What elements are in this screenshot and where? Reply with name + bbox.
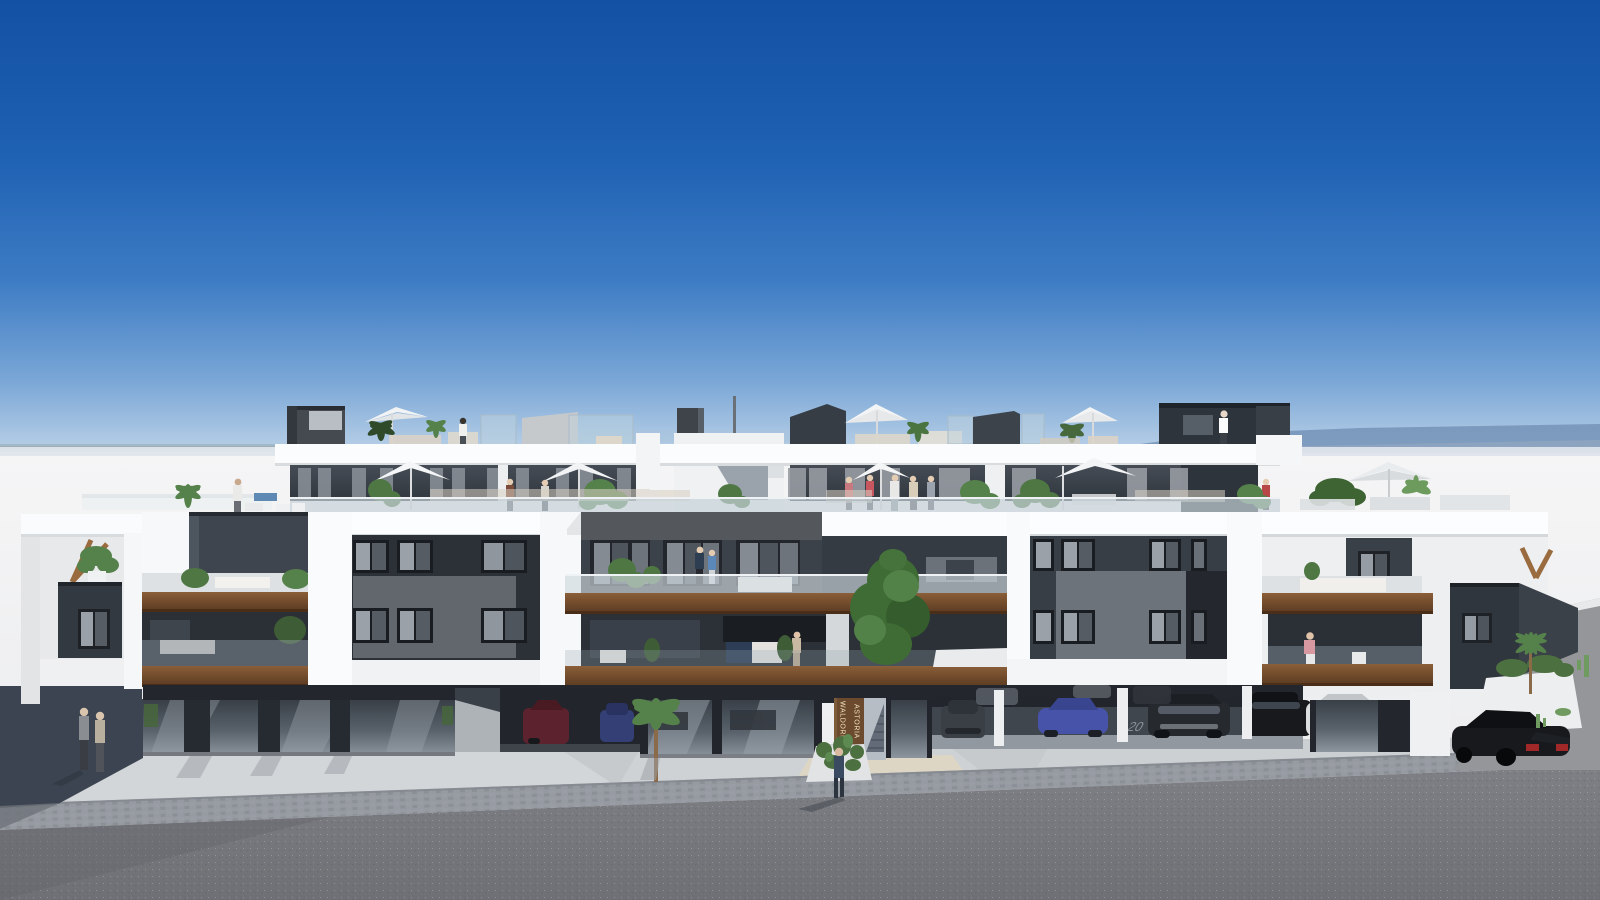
svg-text:ASTORIA: ASTORIA xyxy=(853,704,860,739)
svg-text:WALDORF: WALDORF xyxy=(839,701,846,740)
